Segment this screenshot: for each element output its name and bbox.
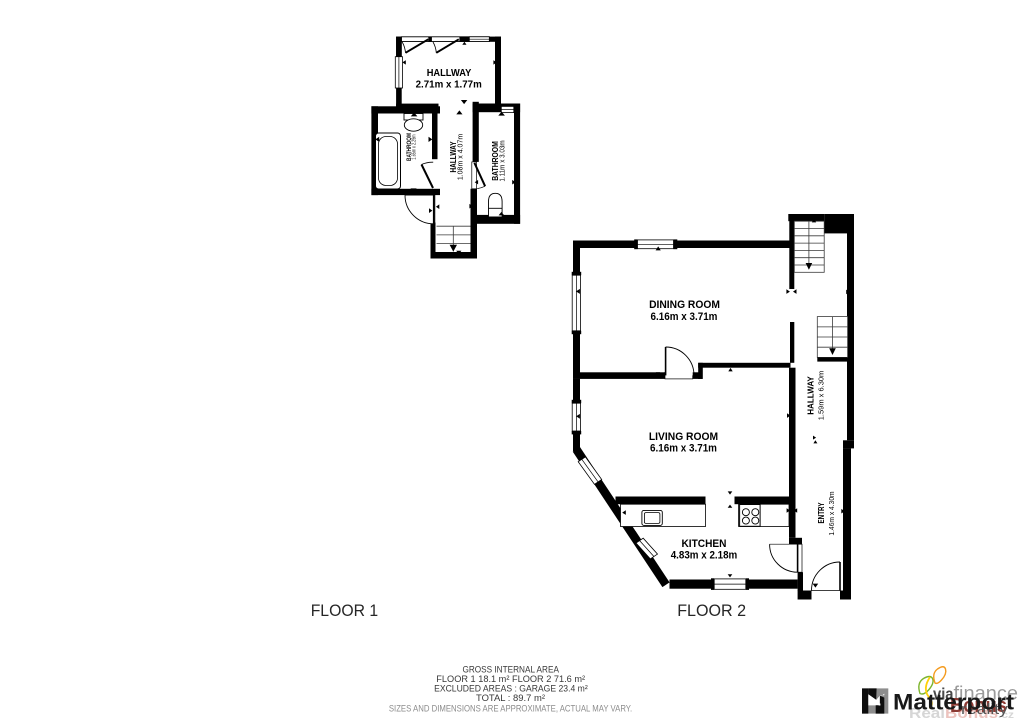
svg-text:1.65m x 2.29m: 1.65m x 2.29m bbox=[411, 134, 417, 159]
svg-text:1.08m x 4.07m: 1.08m x 4.07m bbox=[458, 134, 465, 181]
svg-text:Matterport: Matterport bbox=[893, 689, 1015, 714]
svg-text:1.46m x 4.30m: 1.46m x 4.30m bbox=[827, 491, 836, 535]
svg-text:KITCHEN: KITCHEN bbox=[682, 538, 727, 550]
svg-text:6.16m x 3.71m: 6.16m x 3.71m bbox=[650, 442, 717, 454]
svg-text:DINING ROOM: DINING ROOM bbox=[649, 299, 720, 311]
svg-text:ENTRY: ENTRY bbox=[816, 502, 826, 523]
svg-text:1.11m x 3.03m: 1.11m x 3.03m bbox=[500, 140, 507, 181]
svg-text:LIVING ROOM: LIVING ROOM bbox=[649, 431, 718, 443]
svg-text:HALLWAY: HALLWAY bbox=[806, 376, 816, 415]
svg-text:4.83m x 2.18m: 4.83m x 2.18m bbox=[671, 550, 738, 562]
svg-text:FLOOR 1: FLOOR 1 bbox=[311, 602, 378, 620]
svg-text:6.16m x 3.71m: 6.16m x 3.71m bbox=[651, 311, 718, 323]
svg-text:HALLWAY: HALLWAY bbox=[427, 68, 472, 79]
svg-text:SIZES AND DIMENSIONS ARE APPRO: SIZES AND DIMENSIONS ARE APPROXIMATE, AC… bbox=[389, 704, 632, 715]
svg-text:TOTAL : 89.7 m²: TOTAL : 89.7 m² bbox=[476, 693, 546, 704]
svg-text:2.71m x 1.77m: 2.71m x 1.77m bbox=[416, 79, 482, 90]
svg-text:FLOOR 2: FLOOR 2 bbox=[677, 602, 746, 620]
svg-text:1.59m x 6.30m: 1.59m x 6.30m bbox=[817, 371, 826, 421]
